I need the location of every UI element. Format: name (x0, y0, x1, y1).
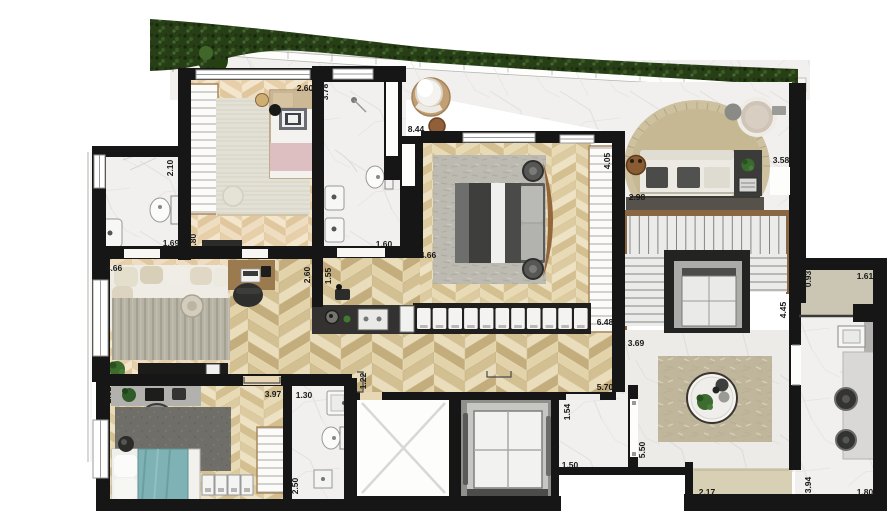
svg-text:3.80: 3.80 (188, 233, 198, 250)
svg-text:2.50: 2.50 (290, 477, 300, 494)
svg-text:1.61: 1.61 (857, 271, 874, 281)
svg-text:3.97: 3.97 (265, 389, 282, 399)
svg-text:4.05: 4.05 (602, 152, 612, 169)
svg-text:1.69: 1.69 (163, 238, 180, 248)
svg-text:2.60: 2.60 (297, 83, 314, 93)
svg-text:2.52: 2.52 (103, 386, 113, 403)
svg-text:3.58: 3.58 (773, 155, 790, 165)
svg-text:1.50: 1.50 (562, 460, 579, 470)
svg-text:0.93: 0.93 (803, 270, 813, 287)
svg-text:1.55: 1.55 (323, 267, 333, 284)
svg-text:5.50: 5.50 (637, 441, 647, 458)
svg-text:6.48: 6.48 (597, 317, 614, 327)
svg-text:4.45: 4.45 (778, 301, 788, 318)
svg-text:4.66: 4.66 (106, 263, 123, 273)
svg-text:4.66: 4.66 (420, 250, 437, 260)
svg-text:3.94: 3.94 (803, 476, 813, 493)
svg-text:2.60: 2.60 (302, 266, 312, 283)
svg-text:5.70: 5.70 (597, 382, 614, 392)
svg-text:1.30: 1.30 (296, 390, 313, 400)
svg-text:1.22: 1.22 (358, 372, 368, 389)
svg-text:1.60: 1.60 (376, 239, 393, 249)
svg-text:1.54: 1.54 (562, 403, 572, 420)
svg-text:3.78: 3.78 (320, 83, 330, 100)
svg-text:2.98: 2.98 (629, 192, 646, 202)
svg-text:2.17: 2.17 (699, 487, 716, 497)
svg-text:1.80: 1.80 (857, 487, 874, 497)
svg-text:8.44: 8.44 (408, 124, 425, 134)
svg-text:2.10: 2.10 (165, 159, 175, 176)
svg-text:3.69: 3.69 (628, 338, 645, 348)
